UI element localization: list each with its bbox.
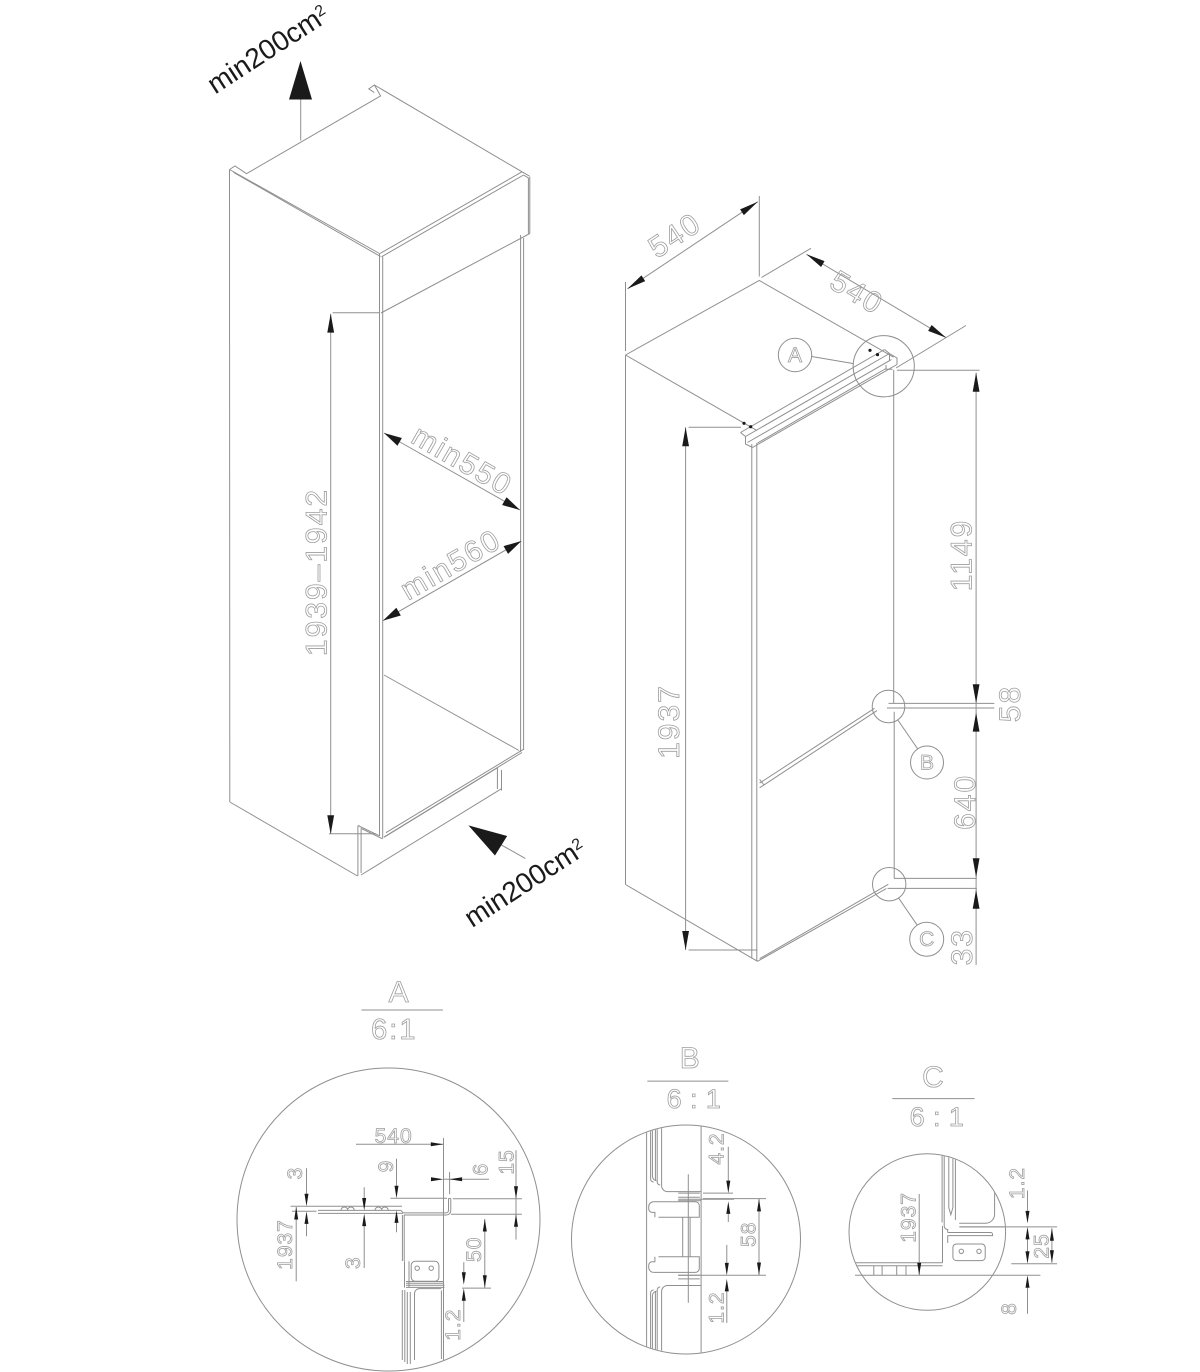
svg-text:A: A — [788, 344, 802, 367]
svg-text:25: 25 — [1031, 1233, 1054, 1258]
svg-text:B: B — [920, 752, 934, 775]
svg-text:1.2: 1.2 — [1006, 1167, 1029, 1199]
svg-text:1937: 1937 — [274, 1219, 297, 1270]
svg-text:6: 6 — [470, 1163, 493, 1176]
svg-text:4.2: 4.2 — [706, 1132, 729, 1164]
svg-text:6 : 1: 6 : 1 — [667, 1084, 723, 1114]
svg-text:1.2: 1.2 — [442, 1309, 465, 1341]
svg-text:58: 58 — [994, 685, 1027, 722]
svg-text:1937: 1937 — [653, 684, 686, 759]
svg-text:1937: 1937 — [898, 1192, 921, 1243]
svg-text:33: 33 — [946, 928, 979, 965]
svg-text:540: 540 — [375, 1125, 413, 1148]
svg-text:640: 640 — [949, 774, 982, 830]
svg-text:58: 58 — [737, 1222, 760, 1247]
svg-text:1.2: 1.2 — [705, 1291, 728, 1323]
svg-text:1939–1942: 1939–1942 — [301, 488, 334, 656]
svg-text:50: 50 — [463, 1237, 486, 1262]
svg-text:3: 3 — [342, 1256, 365, 1269]
svg-text:9: 9 — [375, 1160, 398, 1173]
svg-text:6 : 1: 6 : 1 — [910, 1102, 966, 1132]
svg-text:6:1: 6:1 — [371, 1014, 417, 1046]
svg-text:3: 3 — [284, 1167, 307, 1180]
svg-text:C: C — [919, 928, 934, 951]
svg-text:15: 15 — [495, 1149, 518, 1174]
svg-text:8: 8 — [998, 1302, 1021, 1315]
svg-text:B: B — [680, 1042, 700, 1075]
svg-text:A: A — [389, 976, 409, 1009]
svg-text:1149: 1149 — [945, 519, 978, 592]
svg-text:C: C — [922, 1061, 944, 1094]
